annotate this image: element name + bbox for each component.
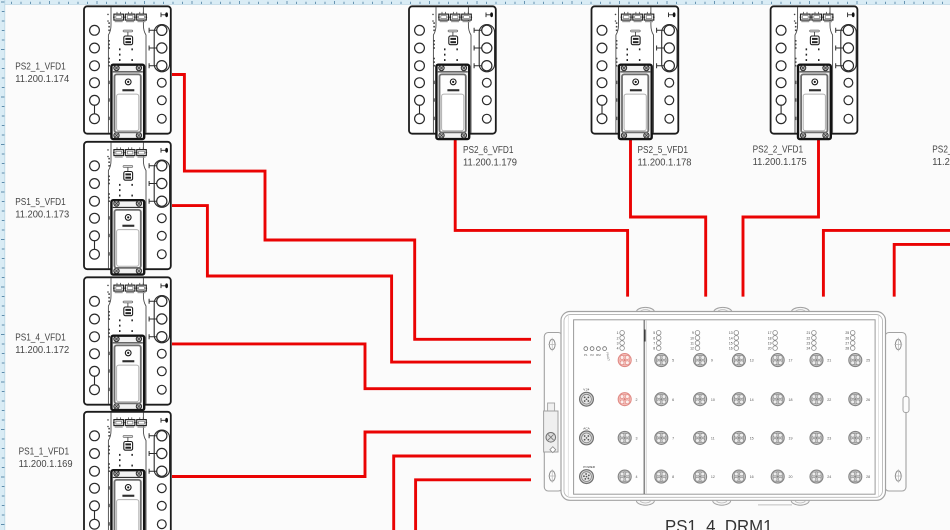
svg-text:PS2_1_VFD1: PS2_1_VFD1 bbox=[15, 62, 66, 73]
svg-text:ACA: ACA bbox=[583, 426, 590, 430]
svg-text:28: 28 bbox=[845, 347, 849, 351]
svg-text:PS1_1_VFD1: PS1_1_VFD1 bbox=[19, 447, 70, 458]
svg-text:PS1_5_VFD1: PS1_5_VFD1 bbox=[15, 197, 66, 208]
svg-text:12: 12 bbox=[690, 347, 694, 351]
svg-text:11: 11 bbox=[711, 437, 715, 441]
svg-text:26: 26 bbox=[866, 398, 870, 402]
svg-text:5: 5 bbox=[653, 331, 655, 335]
svg-text:8: 8 bbox=[672, 475, 674, 479]
svg-text:11.200.1.179: 11.200.1.179 bbox=[463, 157, 517, 168]
svg-text:3: 3 bbox=[617, 341, 619, 345]
svg-text:6: 6 bbox=[672, 398, 674, 402]
svg-text:20: 20 bbox=[789, 475, 793, 479]
svg-text:PS1_4_VFD1: PS1_4_VFD1 bbox=[15, 333, 66, 344]
svg-text:28: 28 bbox=[866, 475, 870, 479]
svg-text:22: 22 bbox=[807, 336, 811, 340]
svg-text:20: 20 bbox=[768, 347, 772, 351]
svg-text:RM: RM bbox=[596, 353, 601, 357]
svg-text:11.200.1.173: 11.200.1.173 bbox=[15, 209, 69, 220]
svg-text:11: 11 bbox=[690, 341, 694, 345]
svg-text:6: 6 bbox=[653, 336, 655, 340]
svg-text:13: 13 bbox=[729, 331, 733, 335]
svg-text:4: 4 bbox=[636, 475, 638, 479]
svg-text:9: 9 bbox=[711, 359, 713, 363]
svg-text:8: 8 bbox=[653, 347, 655, 351]
svg-text:3: 3 bbox=[636, 437, 638, 441]
svg-text:11.200.1.172: 11.200.1.172 bbox=[15, 345, 69, 356]
svg-text:18: 18 bbox=[768, 336, 772, 340]
svg-text:10: 10 bbox=[711, 398, 715, 402]
svg-text:25: 25 bbox=[845, 331, 849, 335]
svg-text:1: 1 bbox=[617, 331, 619, 335]
svg-text:5: 5 bbox=[672, 359, 674, 363]
svg-text:POWER: POWER bbox=[583, 465, 595, 469]
svg-text:PS2_5_VFD1: PS2_5_VFD1 bbox=[638, 145, 689, 156]
svg-text:16: 16 bbox=[750, 475, 754, 479]
svg-text:25: 25 bbox=[866, 359, 870, 363]
svg-text:P2: P2 bbox=[590, 353, 594, 357]
svg-text:21: 21 bbox=[827, 359, 831, 363]
svg-text:7: 7 bbox=[653, 341, 655, 345]
svg-text:11.200.1.178: 11.200.1.178 bbox=[638, 157, 692, 168]
svg-text:27: 27 bbox=[845, 341, 849, 345]
svg-text:24: 24 bbox=[807, 347, 811, 351]
svg-text:27: 27 bbox=[866, 437, 870, 441]
svg-text:14: 14 bbox=[750, 398, 754, 402]
svg-text:11.200.1.177: 11.200.1.177 bbox=[932, 157, 950, 168]
svg-text:10: 10 bbox=[690, 336, 694, 340]
svg-text:PS2_4_VFD1: PS2_4_VFD1 bbox=[932, 145, 950, 156]
svg-text:11.200.1.169: 11.200.1.169 bbox=[19, 459, 73, 470]
svg-text:15: 15 bbox=[729, 341, 733, 345]
svg-text:17: 17 bbox=[789, 359, 793, 363]
svg-text:16: 16 bbox=[729, 347, 733, 351]
svg-text:4: 4 bbox=[617, 347, 619, 351]
svg-text:9: 9 bbox=[692, 331, 694, 335]
svg-text:2: 2 bbox=[636, 398, 638, 402]
svg-text:15: 15 bbox=[750, 437, 754, 441]
svg-text:13: 13 bbox=[750, 359, 754, 363]
svg-text:24: 24 bbox=[827, 475, 831, 479]
svg-text:22: 22 bbox=[827, 398, 831, 402]
svg-text:17: 17 bbox=[768, 331, 772, 335]
svg-text:1: 1 bbox=[636, 359, 638, 363]
svg-text:11.200.1.174: 11.200.1.174 bbox=[15, 74, 69, 85]
svg-text:19: 19 bbox=[768, 341, 772, 345]
svg-text:V.24: V.24 bbox=[583, 388, 589, 392]
svg-text:PS2_6_VFD1: PS2_6_VFD1 bbox=[463, 145, 514, 156]
svg-text:12: 12 bbox=[711, 475, 715, 479]
svg-text:21: 21 bbox=[807, 331, 811, 335]
svg-text:26: 26 bbox=[845, 336, 849, 340]
svg-text:14: 14 bbox=[729, 336, 733, 340]
svg-text:7: 7 bbox=[672, 437, 674, 441]
svg-text:23: 23 bbox=[807, 341, 811, 345]
svg-text:P1: P1 bbox=[584, 353, 588, 357]
svg-text:11.200.1.175: 11.200.1.175 bbox=[753, 157, 807, 168]
svg-text:PS1_4_DRM1: PS1_4_DRM1 bbox=[665, 516, 773, 530]
svg-text:19: 19 bbox=[789, 437, 793, 441]
svg-text:2: 2 bbox=[617, 336, 619, 340]
svg-text:23: 23 bbox=[827, 437, 831, 441]
svg-text:PS2_2_VFD1: PS2_2_VFD1 bbox=[753, 145, 804, 156]
svg-text:18: 18 bbox=[789, 398, 793, 402]
